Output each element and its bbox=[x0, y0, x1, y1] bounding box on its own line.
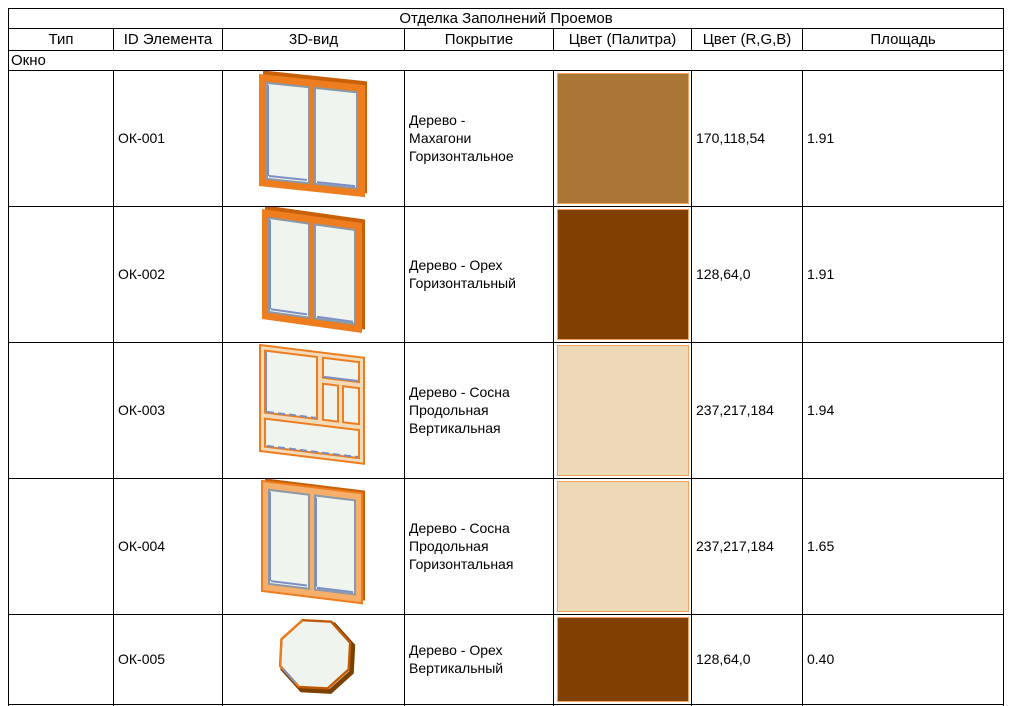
section-header-window: Окно bbox=[9, 51, 1004, 71]
color-swatch bbox=[557, 73, 689, 204]
cell-area: 1.91 bbox=[803, 71, 1004, 207]
table-row: ОК-003 Дер bbox=[9, 343, 1004, 479]
col-header-area: Площадь bbox=[803, 29, 1004, 51]
header-row: Тип ID Элемента 3D-вид Покрытие Цвет (Па… bbox=[9, 29, 1004, 51]
cell-coating: Дерево - Орех Горизонтальный bbox=[405, 207, 554, 343]
cell-rgb: 128,64,0 bbox=[692, 615, 803, 705]
cell-type bbox=[9, 71, 114, 207]
color-swatch bbox=[557, 345, 689, 476]
cell-rgb: 170,118,54 bbox=[692, 71, 803, 207]
table-row: ОК-005 Дерево - Орех Вертикальный 128,64… bbox=[9, 615, 1004, 705]
col-header-rgb: Цвет (R,G,B) bbox=[692, 29, 803, 51]
window-double-casement-icon bbox=[256, 207, 372, 337]
cell-3d-view bbox=[223, 479, 405, 615]
cell-palette bbox=[554, 343, 692, 479]
col-header-3d-view: 3D-вид bbox=[223, 29, 405, 51]
cell-type bbox=[9, 615, 114, 705]
cell-coating: Дерево - Сосна Продольная Вертикальная bbox=[405, 343, 554, 479]
cell-area: 1.91 bbox=[803, 207, 1004, 343]
schedule-sheet: Отделка Заполнений Проемов Тип ID Элемен… bbox=[0, 0, 1010, 706]
col-header-type: Тип bbox=[9, 29, 114, 51]
cell-palette bbox=[554, 479, 692, 615]
cell-element-id: ОК-001 bbox=[114, 71, 223, 207]
cell-3d-view bbox=[223, 207, 405, 343]
table-row: ОК-002 Дерево - Орех Горизонтальный bbox=[9, 207, 1004, 343]
cell-area: 1.65 bbox=[803, 479, 1004, 615]
color-swatch bbox=[557, 617, 689, 702]
cell-type bbox=[9, 207, 114, 343]
window-double-casement-icon bbox=[256, 71, 372, 201]
col-header-palette: Цвет (Палитра) bbox=[554, 29, 692, 51]
title-row: Отделка Заполнений Проемов bbox=[9, 9, 1004, 29]
cell-3d-view bbox=[223, 71, 405, 207]
finish-schedule-table: Отделка Заполнений Проемов Тип ID Элемен… bbox=[8, 8, 1004, 706]
cell-3d-view bbox=[223, 615, 405, 705]
window-multi-pane-icon bbox=[256, 343, 372, 473]
cell-rgb: 237,217,184 bbox=[692, 343, 803, 479]
cell-coating: Дерево - Орех Вертикальный bbox=[405, 615, 554, 705]
cell-palette bbox=[554, 207, 692, 343]
col-header-coating: Покрытие bbox=[405, 29, 554, 51]
cell-rgb: 237,217,184 bbox=[692, 479, 803, 615]
cell-element-id: ОК-002 bbox=[114, 207, 223, 343]
cell-element-id: ОК-003 bbox=[114, 343, 223, 479]
col-header-id: ID Элемента bbox=[114, 29, 223, 51]
cell-type bbox=[9, 479, 114, 615]
section-row: Окно bbox=[9, 51, 1004, 71]
table-row: ОК-001 Дерево - Махагони Горизонтальное bbox=[9, 71, 1004, 207]
color-swatch bbox=[557, 481, 689, 612]
cell-palette bbox=[554, 71, 692, 207]
color-swatch bbox=[557, 209, 689, 340]
window-double-casement-icon bbox=[256, 479, 372, 609]
cell-type bbox=[9, 343, 114, 479]
cell-coating: Дерево - Сосна Продольная Горизонтальная bbox=[405, 479, 554, 615]
cell-area: 1.94 bbox=[803, 343, 1004, 479]
cell-rgb: 128,64,0 bbox=[692, 207, 803, 343]
window-octagonal-icon bbox=[271, 615, 357, 699]
cell-3d-view bbox=[223, 343, 405, 479]
cell-palette bbox=[554, 615, 692, 705]
table-title: Отделка Заполнений Проемов bbox=[9, 9, 1004, 29]
cell-coating: Дерево - Махагони Горизонтальное bbox=[405, 71, 554, 207]
cell-area: 0.40 bbox=[803, 615, 1004, 705]
cell-element-id: ОК-005 bbox=[114, 615, 223, 705]
cell-element-id: ОК-004 bbox=[114, 479, 223, 615]
table-row: ОК-004 Дерево - Сосна Продольная Гор bbox=[9, 479, 1004, 615]
